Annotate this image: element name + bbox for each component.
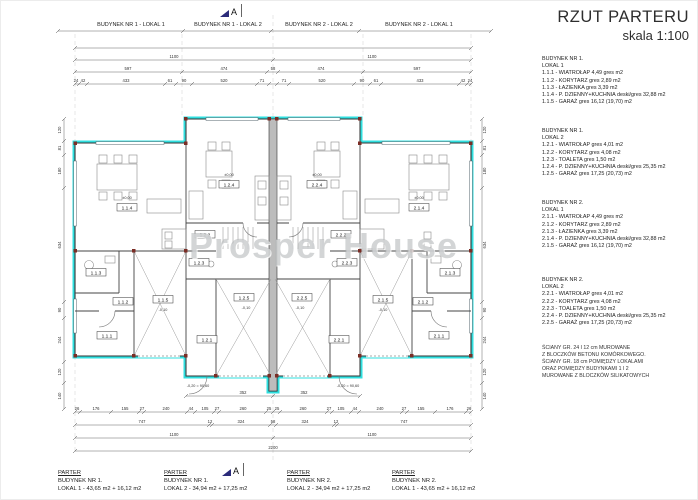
level-mark: -0,20 = 90,60 — [337, 384, 359, 388]
svg-text:44: 44 — [189, 406, 194, 411]
level-mark: -0,10 — [379, 308, 388, 312]
svg-text:2.1.1: 2.1.1 — [434, 334, 445, 340]
svg-text:597: 597 — [125, 66, 133, 71]
room-label: 1.1.1 — [97, 332, 117, 340]
legend-item: 1.2.1 - WIATROŁAP gres 4,01 m2 — [542, 142, 698, 149]
svg-text:176: 176 — [447, 406, 455, 411]
svg-text:634: 634 — [482, 241, 487, 249]
section-marker-top: A — [220, 4, 242, 17]
svg-text:352: 352 — [301, 390, 309, 395]
legend-block-2: BUDYNEK NR 1. LOKAL 2 1.2.1 - WIATROŁAP … — [542, 128, 698, 178]
legend-item: 2.1.2 - KORYTARZ gres 2,89 m2 — [542, 222, 698, 229]
room-label: 2.1.5 — [373, 296, 393, 304]
svg-text:597: 597 — [414, 66, 422, 71]
legend-item: 1.2.2 - KORYTARZ gres 4,08 m2 — [542, 150, 698, 157]
legend-item: 2.2.3 - TOALETA gres 1,50 m2 — [542, 306, 698, 313]
dim-top-detail: 24424336190520717152090614334224 — [74, 78, 473, 83]
svg-text:240: 240 — [163, 406, 171, 411]
svg-text:120: 120 — [57, 368, 62, 376]
svg-text:2.1.2: 2.1.2 — [418, 300, 429, 306]
svg-text:180: 180 — [57, 167, 62, 175]
svg-text:433: 433 — [417, 78, 425, 83]
svg-text:244: 244 — [57, 336, 62, 344]
svg-text:1.2.4: 1.2.4 — [224, 183, 235, 189]
legend-item: 1.1.2 - KORYTARZ gres 2,89 m2 — [542, 78, 698, 85]
note-line: ORAZ POMIĘDZY BUDYNKAMI 1 I 2 — [542, 366, 698, 373]
svg-text:324: 324 — [238, 419, 246, 424]
svg-text:27: 27 — [215, 406, 220, 411]
level-mark: -0,10 — [242, 306, 251, 310]
room-label: 2.2.4 — [307, 181, 327, 189]
svg-text:90: 90 — [57, 307, 62, 312]
svg-text:747: 747 — [139, 419, 147, 424]
note-line: MUROWANE Z BLOCZKÓW SILIKATOWYCH — [542, 373, 698, 380]
svg-text:81: 81 — [482, 145, 487, 150]
svg-text:90: 90 — [360, 78, 365, 83]
legend-item: 1.1.1 - WIATROŁAP 4,49 gres m2 — [542, 70, 698, 77]
svg-text:2.2.3: 2.2.3 — [342, 261, 353, 267]
legend-item: 2.1.3 - ŁAZIENKA gres 3,39 m2 — [542, 229, 698, 236]
room-label: 2.2.1 — [329, 336, 349, 344]
svg-text:520: 520 — [319, 78, 327, 83]
room-label: 1.1.5 — [153, 296, 173, 304]
svg-text:324: 324 — [302, 419, 310, 424]
room-label: 2.1.2 — [413, 298, 433, 306]
svg-text:2.1.5: 2.1.5 — [378, 298, 389, 304]
svg-text:520: 520 — [221, 78, 229, 83]
area-summary-b1l2: PARTER BUDYNEK NR 1. LOKAL 2 - 34,94 m2 … — [164, 469, 289, 493]
svg-text:352: 352 — [240, 390, 248, 395]
dim-bottom-total: 2200 — [268, 445, 278, 450]
svg-text:2.2.1: 2.2.1 — [334, 338, 345, 344]
svg-text:1100: 1100 — [169, 432, 179, 437]
scale-label: skala 1:100 — [557, 28, 689, 43]
room-label: 2.2.3 — [337, 259, 357, 267]
svg-text:81: 81 — [57, 145, 62, 150]
svg-text:24: 24 — [468, 78, 473, 83]
room-label: 2.2.2 — [331, 231, 351, 239]
room-label: 2.1.1 — [429, 332, 449, 340]
level-mark: -0,10 — [296, 306, 305, 310]
dim-bottom-halves: 11001100 — [169, 432, 377, 437]
level-mark: -0,10 — [159, 308, 168, 312]
room-label: 1.2.3 — [189, 259, 209, 267]
svg-text:1.2.1: 1.2.1 — [202, 338, 213, 344]
section-cut-icon — [220, 10, 229, 17]
room-label: 1.1.3 — [86, 269, 106, 277]
svg-text:26: 26 — [467, 406, 472, 411]
dim-top-halves: 11001100 — [169, 54, 377, 59]
area-summary-b2l1: PARTER BUDYNEK NR 2. LOKAL 1 - 43,65 m2 … — [392, 469, 517, 493]
svg-text:44: 44 — [353, 406, 358, 411]
section-line — [241, 4, 242, 17]
blueprint-page: 11001100 59747458474597 2442433619052071… — [0, 0, 698, 500]
svg-text:71: 71 — [282, 78, 287, 83]
legend-block-1: BUDYNEK NR 1. LOKAL 1 1.1.1 - WIATROŁAP … — [542, 56, 698, 106]
legend-item: 1.1.5 - GARAŻ gres 16,12 (19,70) m2 — [542, 99, 698, 106]
svg-text:1.1.4: 1.1.4 — [122, 206, 133, 212]
dim-bottom-mid: 747123245832412747 — [139, 419, 409, 424]
svg-text:1.2.2: 1.2.2 — [200, 233, 211, 239]
svg-text:244: 244 — [482, 336, 487, 344]
title-block: RZUT PARTERU skala 1:100 — [557, 8, 689, 43]
note-line: Z BLOCZKÓW BETONU KOMÓRKOWEGO. — [542, 352, 698, 359]
svg-text:1100: 1100 — [169, 54, 179, 59]
svg-text:26: 26 — [75, 406, 80, 411]
svg-text:634: 634 — [57, 241, 62, 249]
svg-text:1.1.5: 1.1.5 — [158, 298, 169, 304]
note-line: ŚCIANY GR. 18 cm POMIĘDZY LOKALAMI — [542, 359, 698, 366]
room-label: 1.2.1 — [197, 336, 217, 344]
legend-item: 1.2.3 - TOALETA gres 1,50 m2 — [542, 157, 698, 164]
svg-text:1100: 1100 — [367, 432, 377, 437]
room-label: 1.2.4 — [219, 181, 239, 189]
svg-text:260: 260 — [300, 406, 308, 411]
page-title: RZUT PARTERU — [557, 8, 689, 27]
svg-text:90: 90 — [482, 307, 487, 312]
level-mark: ±0,00 — [224, 173, 233, 177]
svg-text:12: 12 — [208, 419, 213, 424]
svg-text:42: 42 — [461, 78, 466, 83]
svg-text:1.2.3: 1.2.3 — [194, 261, 205, 267]
svg-text:155: 155 — [418, 406, 426, 411]
svg-text:120: 120 — [57, 126, 62, 134]
svg-text:120: 120 — [482, 368, 487, 376]
svg-text:58: 58 — [271, 419, 276, 424]
svg-text:12: 12 — [334, 419, 339, 424]
svg-text:2.2.4: 2.2.4 — [312, 183, 323, 189]
legend-block-4: BUDYNEK NR 2. LOKAL 2 2.2.1 - WIATROŁAP … — [542, 277, 698, 327]
svg-text:2.1.4: 2.1.4 — [414, 206, 425, 212]
svg-text:260: 260 — [240, 406, 248, 411]
room-label: 1.2.5 — [234, 294, 254, 302]
svg-text:25: 25 — [267, 406, 272, 411]
room-label: 2.2.5 — [292, 294, 312, 302]
room-label: 2.1.4 — [409, 204, 429, 212]
svg-text:474: 474 — [221, 66, 229, 71]
svg-text:90: 90 — [182, 78, 187, 83]
legend-item: 1.1.3 - ŁAZIENKA gres 3,39 m2 — [542, 85, 698, 92]
room-label: 2.1.3 — [440, 269, 460, 277]
svg-text:42: 42 — [81, 78, 86, 83]
level-mark: ±0,00 — [414, 196, 423, 200]
svg-text:1.2.5: 1.2.5 — [239, 296, 250, 302]
svg-text:747: 747 — [401, 419, 409, 424]
dim-left: 1208118063490244120140 — [57, 126, 62, 400]
svg-text:1.1.1: 1.1.1 — [102, 334, 113, 340]
level-mark: ±0,00 — [122, 196, 131, 200]
svg-text:58: 58 — [271, 66, 276, 71]
svg-text:61: 61 — [168, 78, 173, 83]
legend-item: 2.1.5 - GARAŻ gres 16,12 (19,70) m2 — [542, 243, 698, 250]
svg-text:474: 474 — [318, 66, 326, 71]
svg-text:120: 120 — [482, 126, 487, 134]
room-label: 1.1.2 — [113, 298, 133, 306]
svg-text:155: 155 — [122, 406, 130, 411]
svg-text:105: 105 — [202, 406, 210, 411]
dim-bottom-detail: 2617615527240441052726025252602710544240… — [75, 406, 472, 411]
dim-top-seg: 59747458474597 — [125, 66, 422, 71]
svg-text:2.2.2: 2.2.2 — [336, 233, 347, 239]
svg-text:140: 140 — [57, 392, 62, 400]
legend-block-3: BUDYNEK NR 2. LOKAL 1 2.1.1 - WIATROŁAP … — [542, 200, 698, 250]
svg-text:1.1.3: 1.1.3 — [91, 271, 102, 277]
svg-text:2200: 2200 — [268, 445, 278, 450]
svg-text:1100: 1100 — [367, 54, 377, 59]
unit-label-b2l1: BUDYNEK NR 2 - LOKAL 1 — [359, 22, 479, 28]
legend-item: 2.2.2 - KORYTARZ gres 4,08 m2 — [542, 299, 698, 306]
note-line: ŚCIANY GR. 24 I 12 cm MUROWANE — [542, 345, 698, 352]
svg-text:105: 105 — [338, 406, 346, 411]
svg-text:71: 71 — [260, 78, 265, 83]
svg-text:61: 61 — [374, 78, 379, 83]
level-mark: ±0,00 — [312, 173, 321, 177]
walls-note: ŚCIANY GR. 24 I 12 cm MUROWANEZ BLOCZKÓW… — [542, 345, 698, 380]
room-label: 1.1.4 — [117, 204, 137, 212]
legend-item: 2.1.1 - WIATROŁAP 4,49 gres m2 — [542, 214, 698, 221]
svg-text:140: 140 — [482, 392, 487, 400]
svg-text:240: 240 — [377, 406, 385, 411]
svg-text:27: 27 — [327, 406, 332, 411]
svg-text:433: 433 — [123, 78, 131, 83]
svg-text:176: 176 — [93, 406, 101, 411]
legend-item: 2.2.1 - WIATROŁAP gres 4,01 m2 — [542, 291, 698, 298]
svg-text:27: 27 — [402, 406, 407, 411]
level-mark: -0,20 = 90,60 — [187, 384, 209, 388]
legend-item: 1.2.5 - GARAŻ gres 17,25 (20,73) m2 — [542, 171, 698, 178]
svg-text:25: 25 — [275, 406, 280, 411]
svg-text:2.1.3: 2.1.3 — [445, 271, 456, 277]
svg-text:180: 180 — [482, 167, 487, 175]
room-label: 1.2.2 — [195, 231, 215, 239]
svg-text:1.1.2: 1.1.2 — [118, 300, 129, 306]
party-wall — [269, 119, 277, 391]
svg-text:27: 27 — [140, 406, 145, 411]
svg-text:2.2.5: 2.2.5 — [297, 296, 308, 302]
legend-item: 2.2.5 - GARAŻ gres 17,25 (20,73) m2 — [542, 320, 698, 327]
svg-text:24: 24 — [74, 78, 79, 83]
dim-right: 1208118063490244120140 — [482, 126, 487, 400]
